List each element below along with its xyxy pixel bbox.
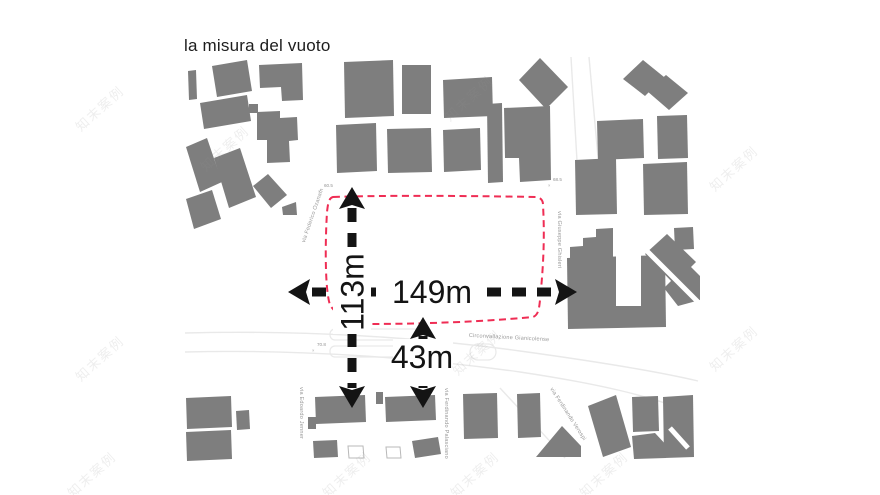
building [597, 119, 644, 160]
building [186, 396, 232, 429]
watermark-text: 知末案例 [707, 143, 762, 194]
building [663, 395, 694, 458]
building [253, 174, 287, 208]
street-label-ozanam: via Federico Ozanam [301, 188, 325, 244]
building [257, 111, 298, 163]
street-label-palasciano: via Ferdinando Palasciano [443, 388, 449, 459]
building [315, 395, 366, 424]
spot-marker-icon: × [312, 348, 315, 353]
watermark-text: 知末案例 [73, 333, 128, 384]
building [674, 227, 694, 250]
watermark-text: 知末案例 [65, 449, 120, 495]
building [632, 433, 668, 459]
street-label-ghisleri: via Giuseppe Ghisleri [556, 211, 562, 268]
spot-elevation: 68.5 [553, 177, 562, 182]
arrowhead-up-icon [410, 317, 436, 339]
building [385, 395, 436, 422]
watermark-text: 知末案例 [73, 83, 128, 134]
building [643, 162, 688, 215]
figure-ground-map: 149m 113m 43m via Federico Ozanam via Gi… [0, 0, 880, 495]
building [344, 60, 394, 118]
building [336, 123, 377, 173]
street-label-jenner: via Edoardo Jenner [298, 387, 304, 439]
building [200, 95, 251, 129]
building-outline [386, 447, 401, 458]
building [188, 70, 197, 100]
building [657, 115, 688, 159]
watermark-text: 知末案例 [448, 449, 503, 495]
courtyard [616, 254, 641, 306]
offset-dimension-label: 43m [391, 339, 453, 375]
building [186, 190, 221, 229]
building [463, 393, 498, 439]
building [487, 103, 503, 183]
width-dimension-label: 149m [392, 274, 472, 310]
building [412, 437, 441, 458]
building [376, 392, 383, 404]
watermark-text: 知末案例 [707, 323, 762, 374]
building [387, 128, 432, 173]
building [259, 63, 303, 101]
height-dimension-label: 113m [335, 253, 371, 331]
building [282, 202, 297, 215]
arrowhead-left-icon [288, 279, 310, 305]
building [308, 417, 316, 429]
building [236, 410, 250, 430]
building [313, 440, 338, 458]
arrowhead-up-icon [339, 187, 365, 209]
building [504, 106, 551, 182]
spot-elevation: 60.5 [324, 183, 333, 188]
building [632, 396, 659, 432]
spot-marker-icon: × [548, 183, 551, 188]
building [402, 65, 431, 114]
building [249, 104, 258, 113]
building [212, 60, 252, 97]
building [519, 58, 568, 109]
building [536, 426, 581, 457]
building [186, 430, 232, 461]
spot-elevation: 70.8 [317, 342, 326, 347]
building [517, 393, 541, 438]
building [443, 128, 481, 172]
building [575, 158, 617, 215]
building [588, 395, 631, 457]
